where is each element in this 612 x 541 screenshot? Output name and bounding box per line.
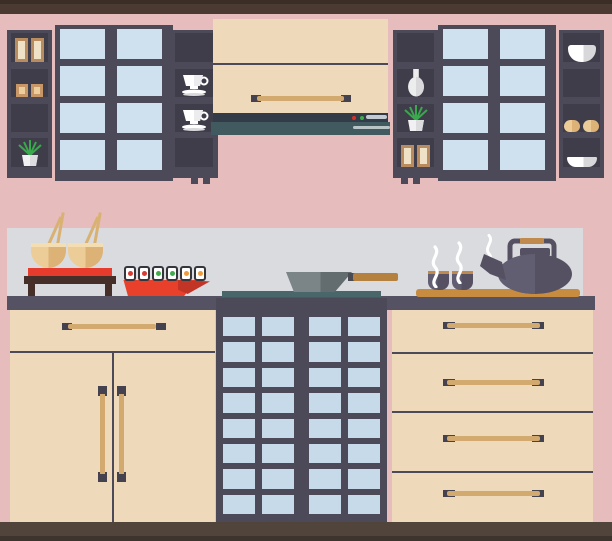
sushi-filling xyxy=(198,271,203,276)
sushi-roll-green xyxy=(152,266,164,281)
cabinet-leg xyxy=(191,178,198,184)
cabinet-leg xyxy=(203,178,210,184)
door-handle xyxy=(119,394,124,474)
sushi-filling xyxy=(142,271,147,276)
shelf-cell-boxes xyxy=(11,33,48,62)
glass-pane xyxy=(309,368,341,387)
glass-pane xyxy=(309,419,341,438)
brown-bowl xyxy=(583,120,599,132)
top-center-cabinet xyxy=(213,19,388,113)
potted-plant-icon xyxy=(16,139,44,167)
cabinet-leg xyxy=(401,178,408,184)
shelf-cell-empty xyxy=(563,69,600,97)
upper-right-unit xyxy=(393,25,604,181)
glass-pane xyxy=(348,469,380,488)
glass-pane xyxy=(348,393,380,412)
drawer-handle xyxy=(68,324,156,329)
glass-pane xyxy=(262,317,294,336)
shelf-cell-empty xyxy=(175,138,213,167)
floor xyxy=(0,522,612,536)
stool-leg xyxy=(105,283,112,296)
upper-right-open-shelf xyxy=(393,30,438,178)
glass-pane xyxy=(262,368,294,387)
glass-pane xyxy=(223,368,255,387)
small-box xyxy=(31,84,43,97)
glass-pane xyxy=(223,495,255,514)
drawer-handle xyxy=(447,491,540,496)
drawer-handle xyxy=(447,323,540,328)
shelf-cell-dish xyxy=(563,138,600,167)
shelf-cell-teacup xyxy=(175,104,213,132)
glass-pane xyxy=(348,444,380,463)
sushi-filling xyxy=(184,271,189,276)
glass-pane xyxy=(348,317,380,336)
red-mat xyxy=(28,268,112,276)
glass-pane xyxy=(60,66,105,96)
upper-left-unit xyxy=(7,25,218,181)
ceiling-beam-edge xyxy=(0,0,612,4)
glass-pane xyxy=(117,29,162,59)
upper-left-glass-cabinet xyxy=(55,25,173,181)
shelf-cell-brown-bowls xyxy=(563,104,600,132)
glass-pane xyxy=(348,495,380,514)
shelf-cell-small-boxes xyxy=(11,69,48,97)
glass-pane xyxy=(309,393,341,412)
drawer-divider xyxy=(392,352,593,354)
sushi-roll-red xyxy=(124,266,136,281)
wok-wooden-handle xyxy=(353,273,398,281)
steam-icon xyxy=(452,236,466,284)
teapot-icon xyxy=(480,234,586,294)
glass-pane xyxy=(117,103,162,133)
glass-pane xyxy=(223,419,255,438)
drawer-divider xyxy=(392,471,593,473)
shelf-cell-empty xyxy=(175,33,213,62)
sushi-rolls xyxy=(124,266,210,281)
glass-pane xyxy=(60,140,105,170)
sushi-roll-orange xyxy=(194,266,206,281)
wooden-stool xyxy=(24,276,116,284)
shoji-door-left xyxy=(223,317,294,514)
glass-pane xyxy=(262,469,294,488)
brown-bowl xyxy=(564,120,580,132)
glass-pane xyxy=(348,368,380,387)
vase-icon xyxy=(407,69,425,97)
shelf-cell-teacup xyxy=(175,69,213,97)
handle-cap xyxy=(156,323,166,330)
hood-led-red xyxy=(352,116,356,120)
glass-pane xyxy=(223,469,255,488)
storage-box xyxy=(15,38,28,62)
glass-pane xyxy=(500,140,545,170)
glass-pane xyxy=(309,495,341,514)
upper-right-glass-cabinet xyxy=(438,25,556,181)
lower-left-cabinet xyxy=(10,310,215,524)
sushi-filling xyxy=(170,271,175,276)
glass-pane xyxy=(223,317,255,336)
teacup-saucer-icon xyxy=(177,108,211,132)
upper-left-cup-shelf xyxy=(170,30,218,178)
cabinet-leg xyxy=(413,178,420,184)
glass-pane xyxy=(117,140,162,170)
cabinet-handle xyxy=(257,96,344,101)
shelf-cell-plant xyxy=(397,104,434,132)
glass-pane xyxy=(443,29,488,59)
door-divider xyxy=(112,353,114,524)
hood-led-green xyxy=(360,116,364,120)
glass-pane xyxy=(309,469,341,488)
sushi-filling xyxy=(128,271,133,276)
teacup-saucer-icon xyxy=(177,73,211,97)
sushi-roll-red xyxy=(138,266,150,281)
hood-vent-line xyxy=(353,126,390,129)
door-handle xyxy=(100,394,105,474)
sushi-roll-green xyxy=(166,266,178,281)
glass-pane xyxy=(309,444,341,463)
potted-plant-icon xyxy=(402,104,430,132)
drawer-handle xyxy=(447,380,540,385)
glass-pane xyxy=(443,103,488,133)
range-hood-body xyxy=(211,122,390,135)
glass-pane xyxy=(500,66,545,96)
shelf-cell-vase xyxy=(397,69,434,97)
hood-control-bar xyxy=(366,115,387,119)
floor-edge xyxy=(0,536,612,541)
shoji-door-right xyxy=(309,317,380,514)
glass-pane xyxy=(262,342,294,361)
glass-pane xyxy=(223,342,255,361)
cabinet-divider xyxy=(213,63,388,65)
upper-right-dish-shelf xyxy=(559,30,604,178)
glass-pane xyxy=(262,444,294,463)
shelf-cell-plant xyxy=(11,138,48,167)
range-hood-panel xyxy=(213,113,388,122)
shelf-cell-empty xyxy=(397,33,434,62)
shelf-cell-bowl xyxy=(563,33,600,62)
shelf-cell-empty xyxy=(11,104,48,132)
glass-pane xyxy=(60,103,105,133)
white-bowl xyxy=(568,45,596,62)
glass-pane xyxy=(262,495,294,514)
glass-pane xyxy=(262,393,294,412)
storage-box xyxy=(401,145,414,167)
glass-pane xyxy=(500,103,545,133)
shelf-cell-boxes xyxy=(397,138,434,167)
glass-pane xyxy=(117,66,162,96)
glass-pane xyxy=(60,29,105,59)
glass-pane xyxy=(309,317,341,336)
sushi-filling xyxy=(156,271,161,276)
glass-pane xyxy=(348,342,380,361)
shallow-dish xyxy=(567,157,597,167)
kitchen-illustration xyxy=(0,0,612,541)
glass-pane xyxy=(500,29,545,59)
storage-box xyxy=(417,145,430,167)
upper-left-open-shelf xyxy=(7,30,52,178)
glass-pane xyxy=(443,66,488,96)
lower-center-glass-unit xyxy=(216,298,387,524)
small-box xyxy=(16,84,28,97)
drawer-divider xyxy=(392,411,593,413)
lower-right-drawers xyxy=(392,310,593,524)
glass-pane xyxy=(262,419,294,438)
drawer-handle xyxy=(447,436,540,441)
steam-icon xyxy=(428,240,442,288)
glass-pane xyxy=(348,419,380,438)
storage-box xyxy=(31,38,44,62)
glass-pane xyxy=(309,342,341,361)
glass-pane xyxy=(223,444,255,463)
sushi-roll-orange xyxy=(180,266,192,281)
stool-leg xyxy=(28,283,35,296)
glass-pane xyxy=(223,393,255,412)
glass-pane xyxy=(443,140,488,170)
